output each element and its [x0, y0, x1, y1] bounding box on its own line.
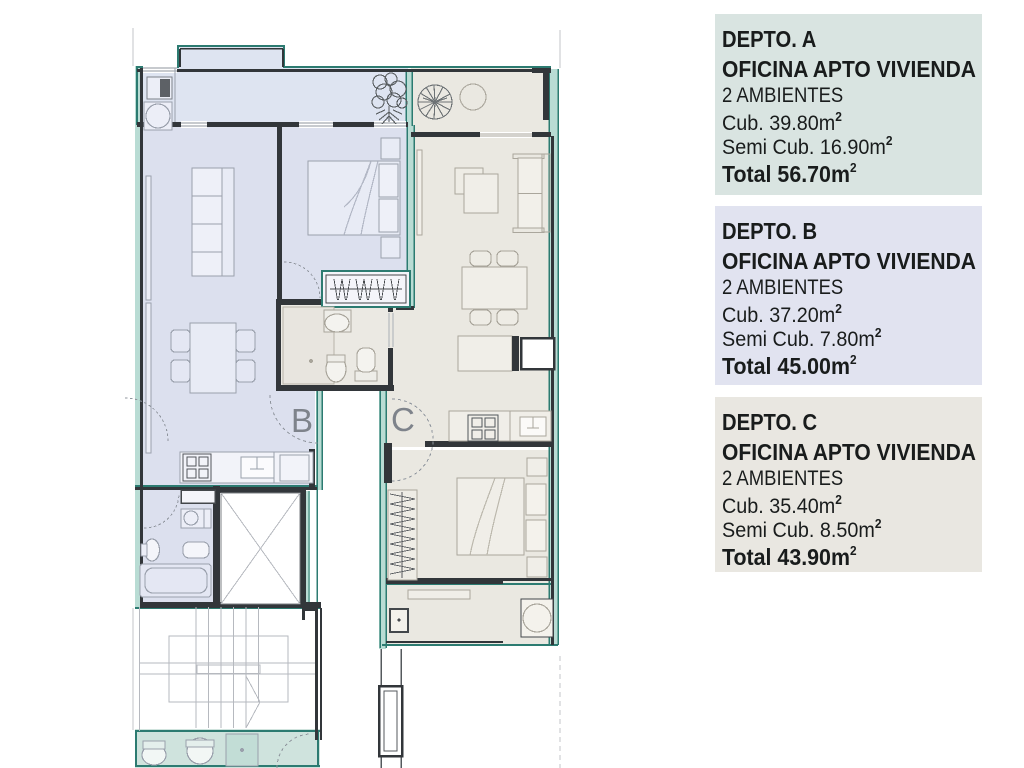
svg-text:B: B — [291, 402, 313, 439]
svg-text:C: C — [391, 401, 415, 438]
